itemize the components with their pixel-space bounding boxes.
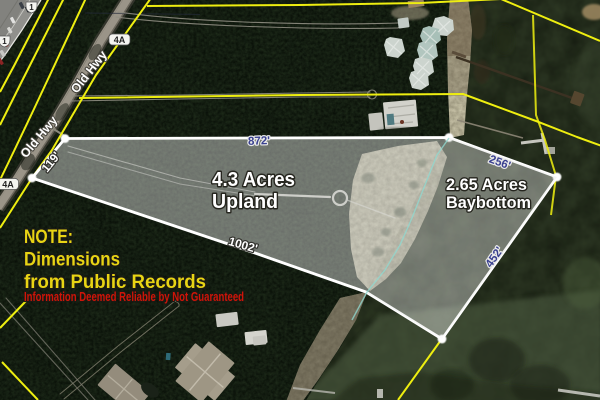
svg-text:NOTE:: NOTE: xyxy=(24,227,73,248)
svg-text:4.3 Acres: 4.3 Acres xyxy=(212,168,295,191)
svg-text:1: 1 xyxy=(29,3,34,12)
svg-text:Dimensions: Dimensions xyxy=(24,250,120,271)
svg-text:4A: 4A xyxy=(114,35,126,45)
svg-text:Information Deemed Reliable by: Information Deemed Reliable by Not Guara… xyxy=(24,290,244,304)
svg-text:1: 1 xyxy=(2,37,7,46)
svg-text:Baybottom: Baybottom xyxy=(446,193,531,212)
svg-text:Upland: Upland xyxy=(212,190,278,213)
svg-text:2.65 Acres: 2.65 Acres xyxy=(446,175,527,194)
svg-text:4A: 4A xyxy=(2,180,14,190)
svg-text:872': 872' xyxy=(248,135,271,148)
